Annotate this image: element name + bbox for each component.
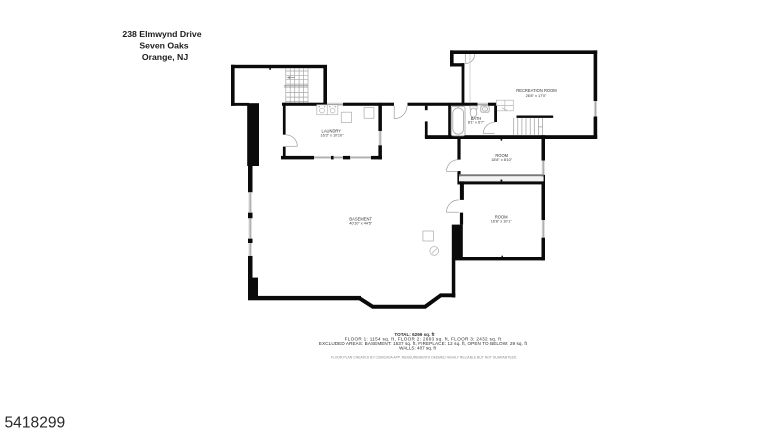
svg-text:WALLS: 407 sq. ft: WALLS: 407 sq. ft: [399, 346, 437, 351]
svg-text:40'10" x 44'5": 40'10" x 44'5": [349, 221, 373, 225]
svg-text:16'8" x 10'1": 16'8" x 10'1": [491, 220, 512, 224]
svg-text:RECREATION ROOM: RECREATION ROOM: [516, 88, 557, 93]
svg-text:26'8" x 17'0": 26'8" x 17'0": [526, 94, 547, 98]
svg-text:5418299: 5418299: [5, 414, 66, 431]
svg-text:18'8" x 8'10": 18'8" x 8'10": [491, 158, 512, 162]
svg-text:Orange, NJ: Orange, NJ: [142, 52, 189, 62]
svg-text:238 Elmwynd Drive: 238 Elmwynd Drive: [122, 29, 201, 39]
svg-text:16'3" x 10'10": 16'3" x 10'10": [321, 133, 345, 137]
svg-text:FLOOR PLAN CREATED BY CUBICASA: FLOOR PLAN CREATED BY CUBICASA APP. MEAS…: [331, 355, 518, 359]
svg-text:8'1" x 6'7": 8'1" x 6'7": [468, 120, 485, 124]
svg-text:Seven Oaks: Seven Oaks: [139, 41, 188, 51]
